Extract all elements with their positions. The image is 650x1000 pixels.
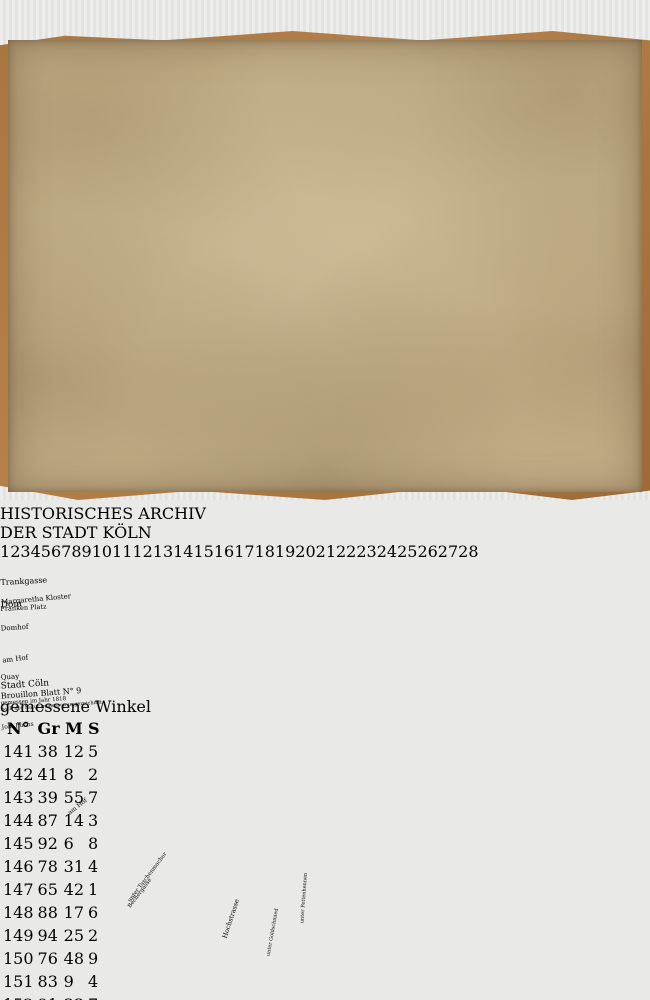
angle-table-cell: 88 xyxy=(37,902,61,923)
angle-table-cell: 143 xyxy=(2,787,35,808)
angle-table-row: 15291337 xyxy=(2,994,101,1000)
angle-table-cell: 151 xyxy=(2,971,35,992)
archive-label-line1: HISTORISCHES ARCHIV xyxy=(0,504,206,523)
angle-table-cell: 48 xyxy=(63,948,85,969)
angle-table-cell: 9 xyxy=(87,948,101,969)
archive-label: HISTORISCHES ARCHIV DER STADT KÖLN xyxy=(0,504,650,542)
angle-table-row: 14888176 xyxy=(2,902,101,923)
angle-table-cell: 92 xyxy=(37,833,61,854)
angle-table-cell: 6 xyxy=(87,902,101,923)
angle-table-cell: 148 xyxy=(2,902,35,923)
angle-table-cell: 42 xyxy=(63,879,85,900)
angle-table-cell: 33 xyxy=(63,994,85,1000)
angle-table-row: 14138125 xyxy=(2,741,101,762)
angle-table-cell: 2 xyxy=(87,764,101,785)
angle-table-cell: 38 xyxy=(37,741,61,762)
angle-table-cell: 4 xyxy=(87,856,101,877)
angle-table-cell: 144 xyxy=(2,810,35,831)
angle-table-row: 14765421 xyxy=(2,879,101,900)
angle-table-cell: 8 xyxy=(87,833,101,854)
ruler-number: 3 xyxy=(20,542,30,561)
angle-table-cell: 6 xyxy=(63,833,85,854)
ruler-number: 13 xyxy=(153,542,173,561)
angle-table-row: 14487143 xyxy=(2,810,101,831)
angle-table-cell: 149 xyxy=(2,925,35,946)
angle-table-cell: 17 xyxy=(63,902,85,923)
title-cartouche: Stadt Cöln Brouillon Blatt N° 9 gemessen… xyxy=(0,659,650,697)
ruler-number: 15 xyxy=(193,542,213,561)
ruler-number: 9 xyxy=(82,542,92,561)
angle-table-cell: 9 xyxy=(63,971,85,992)
ruler-number: 12 xyxy=(132,542,152,561)
angle-table-row: 1459268 xyxy=(2,833,101,854)
angle-table-cell: 8 xyxy=(63,764,85,785)
angle-table-cell: 147 xyxy=(2,879,35,900)
ruler-number: 8 xyxy=(71,542,81,561)
ruler-number: 16 xyxy=(214,542,234,561)
angle-table-cell: 65 xyxy=(37,879,61,900)
ruler-number: 7 xyxy=(61,542,71,561)
angle-table-cell: 83 xyxy=(37,971,61,992)
angle-table-cell: 7 xyxy=(87,994,101,1000)
ruler-number: 20 xyxy=(295,542,315,561)
angle-table-cell: 150 xyxy=(2,948,35,969)
angle-table-row: 14678314 xyxy=(2,856,101,877)
ruler-number: 19 xyxy=(275,542,295,561)
ruler-number: 17 xyxy=(234,542,254,561)
ruler-number: 18 xyxy=(255,542,275,561)
angle-table-cell: 31 xyxy=(63,856,85,877)
angle-table-cell: 152 xyxy=(2,994,35,1000)
angle-table-cell: 145 xyxy=(2,833,35,854)
angle-table-cell: 12 xyxy=(63,741,85,762)
angle-table-cell: 4 xyxy=(87,971,101,992)
angle-table-cell: 91 xyxy=(37,994,61,1000)
angle-table-cell: 78 xyxy=(37,856,61,877)
angle-table-row: 15076489 xyxy=(2,948,101,969)
angle-table-cell: 142 xyxy=(2,764,35,785)
angle-table-row: 1518394 xyxy=(2,971,101,992)
angle-table-cell: 5 xyxy=(87,741,101,762)
angle-table-row: 1424182 xyxy=(2,764,101,785)
angle-table-cell: 146 xyxy=(2,856,35,877)
angle-table-cell: 1 xyxy=(87,879,101,900)
angle-table: N°GrMS1413812514241821433955714487143145… xyxy=(0,716,650,1000)
angle-table-cell: 87 xyxy=(37,810,61,831)
angle-table-cell: 3 xyxy=(87,810,101,831)
ruler-number: 14 xyxy=(173,542,193,561)
ruler-number: 11 xyxy=(112,542,132,561)
angle-table-cell: 25 xyxy=(63,925,85,946)
angle-table-cell: 2 xyxy=(87,925,101,946)
ruler-number: 5 xyxy=(41,542,51,561)
ruler-number: 2 xyxy=(10,542,20,561)
angle-table-cell: 94 xyxy=(37,925,61,946)
angle-table-cell: 39 xyxy=(37,787,61,808)
angle-table-cell: 76 xyxy=(37,948,61,969)
archive-label-line2: DER STADT KÖLN xyxy=(0,523,152,542)
ruler-number: 1 xyxy=(0,542,10,561)
ruler-number: 10 xyxy=(92,542,112,561)
ruler-number: 6 xyxy=(51,542,61,561)
angle-table-cell: 141 xyxy=(2,741,35,762)
angle-table-cell: 41 xyxy=(37,764,61,785)
ruler-number: 4 xyxy=(31,542,41,561)
angle-table-row: 14994252 xyxy=(2,925,101,946)
map-paper-sheet xyxy=(8,40,642,492)
